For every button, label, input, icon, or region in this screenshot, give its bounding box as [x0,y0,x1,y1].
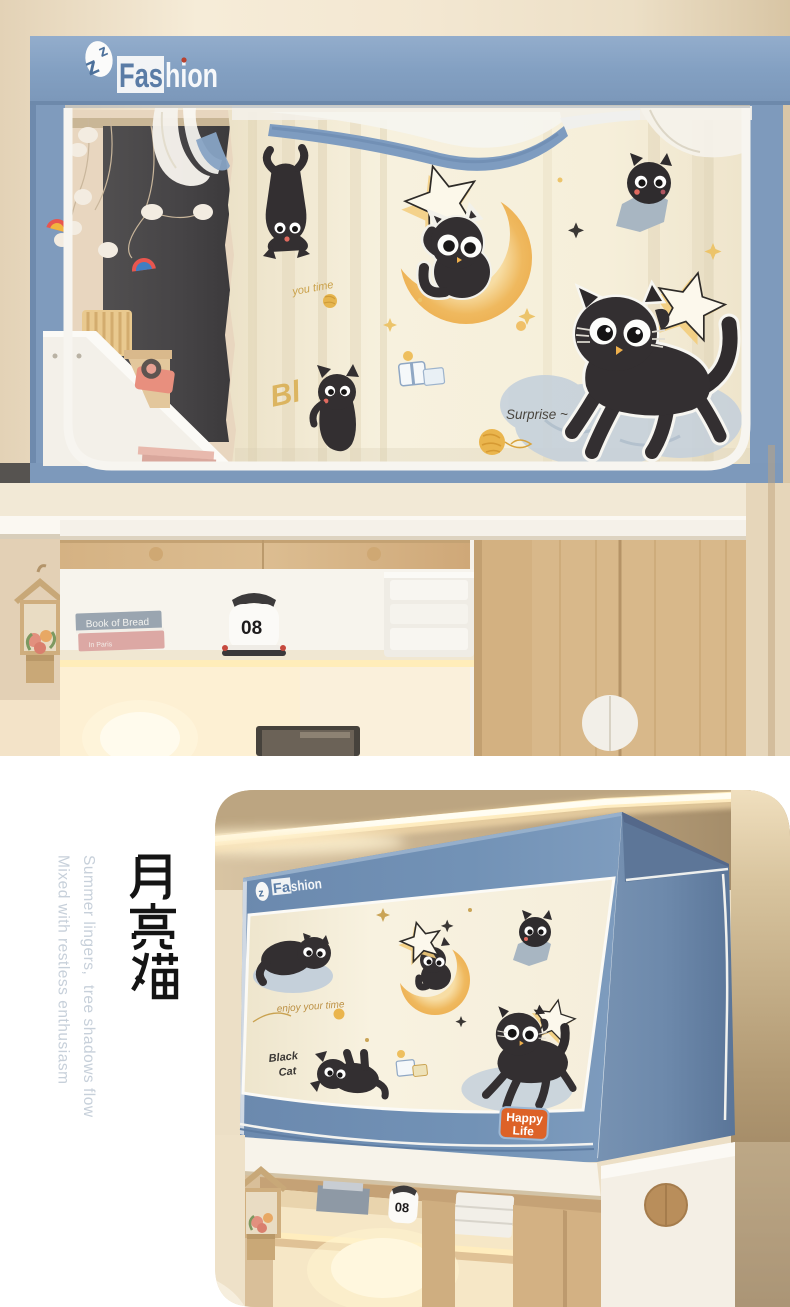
svg-text:In Paris: In Paris [88,641,112,649]
svg-text:Cat: Cat [278,1065,298,1079]
svg-text:08: 08 [394,1199,409,1215]
svg-text:Fa: Fa [272,879,291,897]
svg-text:Fas: Fas [119,57,163,95]
svg-text:Book of Bread: Book of Bread [86,617,150,630]
svg-text:08: 08 [241,618,262,639]
svg-text:Surprise ~: Surprise ~ [506,407,568,422]
svg-text:hion: hion [165,57,218,95]
svg-text:Life: Life [512,1123,534,1138]
svg-text:shion: shion [290,875,323,894]
